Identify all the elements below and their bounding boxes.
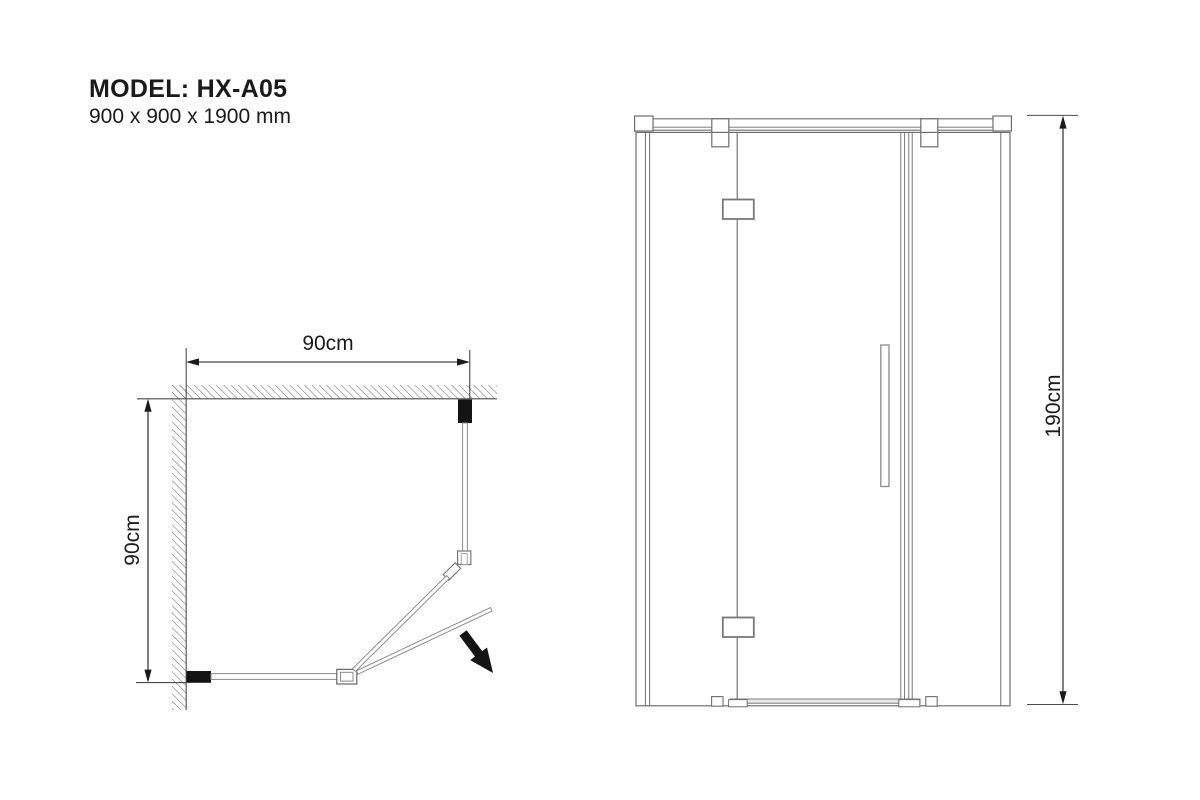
door-handle-bar (881, 345, 889, 487)
plan-view: 90cm 90cm (121, 332, 497, 710)
shower-enclosure-drawing: 90cm 90cm (0, 0, 1200, 800)
depth-dim-label: 90cm (121, 514, 144, 565)
door-pivot-bracket-inner (341, 672, 354, 681)
width-dim-arrow-left (186, 358, 199, 365)
bar-end-cap-left (635, 116, 653, 131)
right-fixed-glass-panel (463, 423, 468, 551)
height-dim-label: 190cm (1042, 374, 1065, 437)
width-dim-label: 90cm (302, 332, 353, 355)
pivot-door-closed-position (353, 576, 450, 672)
door-threshold-bar (730, 699, 920, 703)
elevation-view: 190cm (635, 115, 1078, 707)
bottom-foot-right (926, 697, 937, 707)
width-dim-arrow-right (457, 358, 470, 365)
glass-corner-bracket-inner (461, 554, 467, 565)
door-hinge-top (723, 200, 754, 220)
enclosure-frame (636, 132, 1010, 705)
height-dim-arrow-bottom (1059, 691, 1066, 704)
bottom-foot-left (712, 697, 723, 707)
top-wall-hatch (172, 385, 497, 399)
threshold-end-block-left (729, 700, 748, 707)
depth-dim-arrow-top (144, 399, 151, 412)
bar-end-cap-right (993, 116, 1011, 131)
left-wall-profile-block (187, 671, 212, 683)
technical-drawing-canvas: MODEL: HX-A05 900 x 900 x 1900 mm 90cm (0, 0, 1200, 800)
depth-dim-arrow-bottom (144, 670, 151, 683)
top-wall-profile-block (458, 400, 472, 424)
height-dim-arrow-top (1059, 116, 1066, 129)
door-swing-arrow-icon (459, 630, 493, 673)
top-support-bar (636, 119, 1010, 130)
left-wall-hatch (172, 385, 186, 710)
threshold-end-block-right (899, 700, 920, 707)
door-hinge-bottom (723, 618, 754, 638)
bottom-fixed-glass-panel (211, 674, 337, 680)
